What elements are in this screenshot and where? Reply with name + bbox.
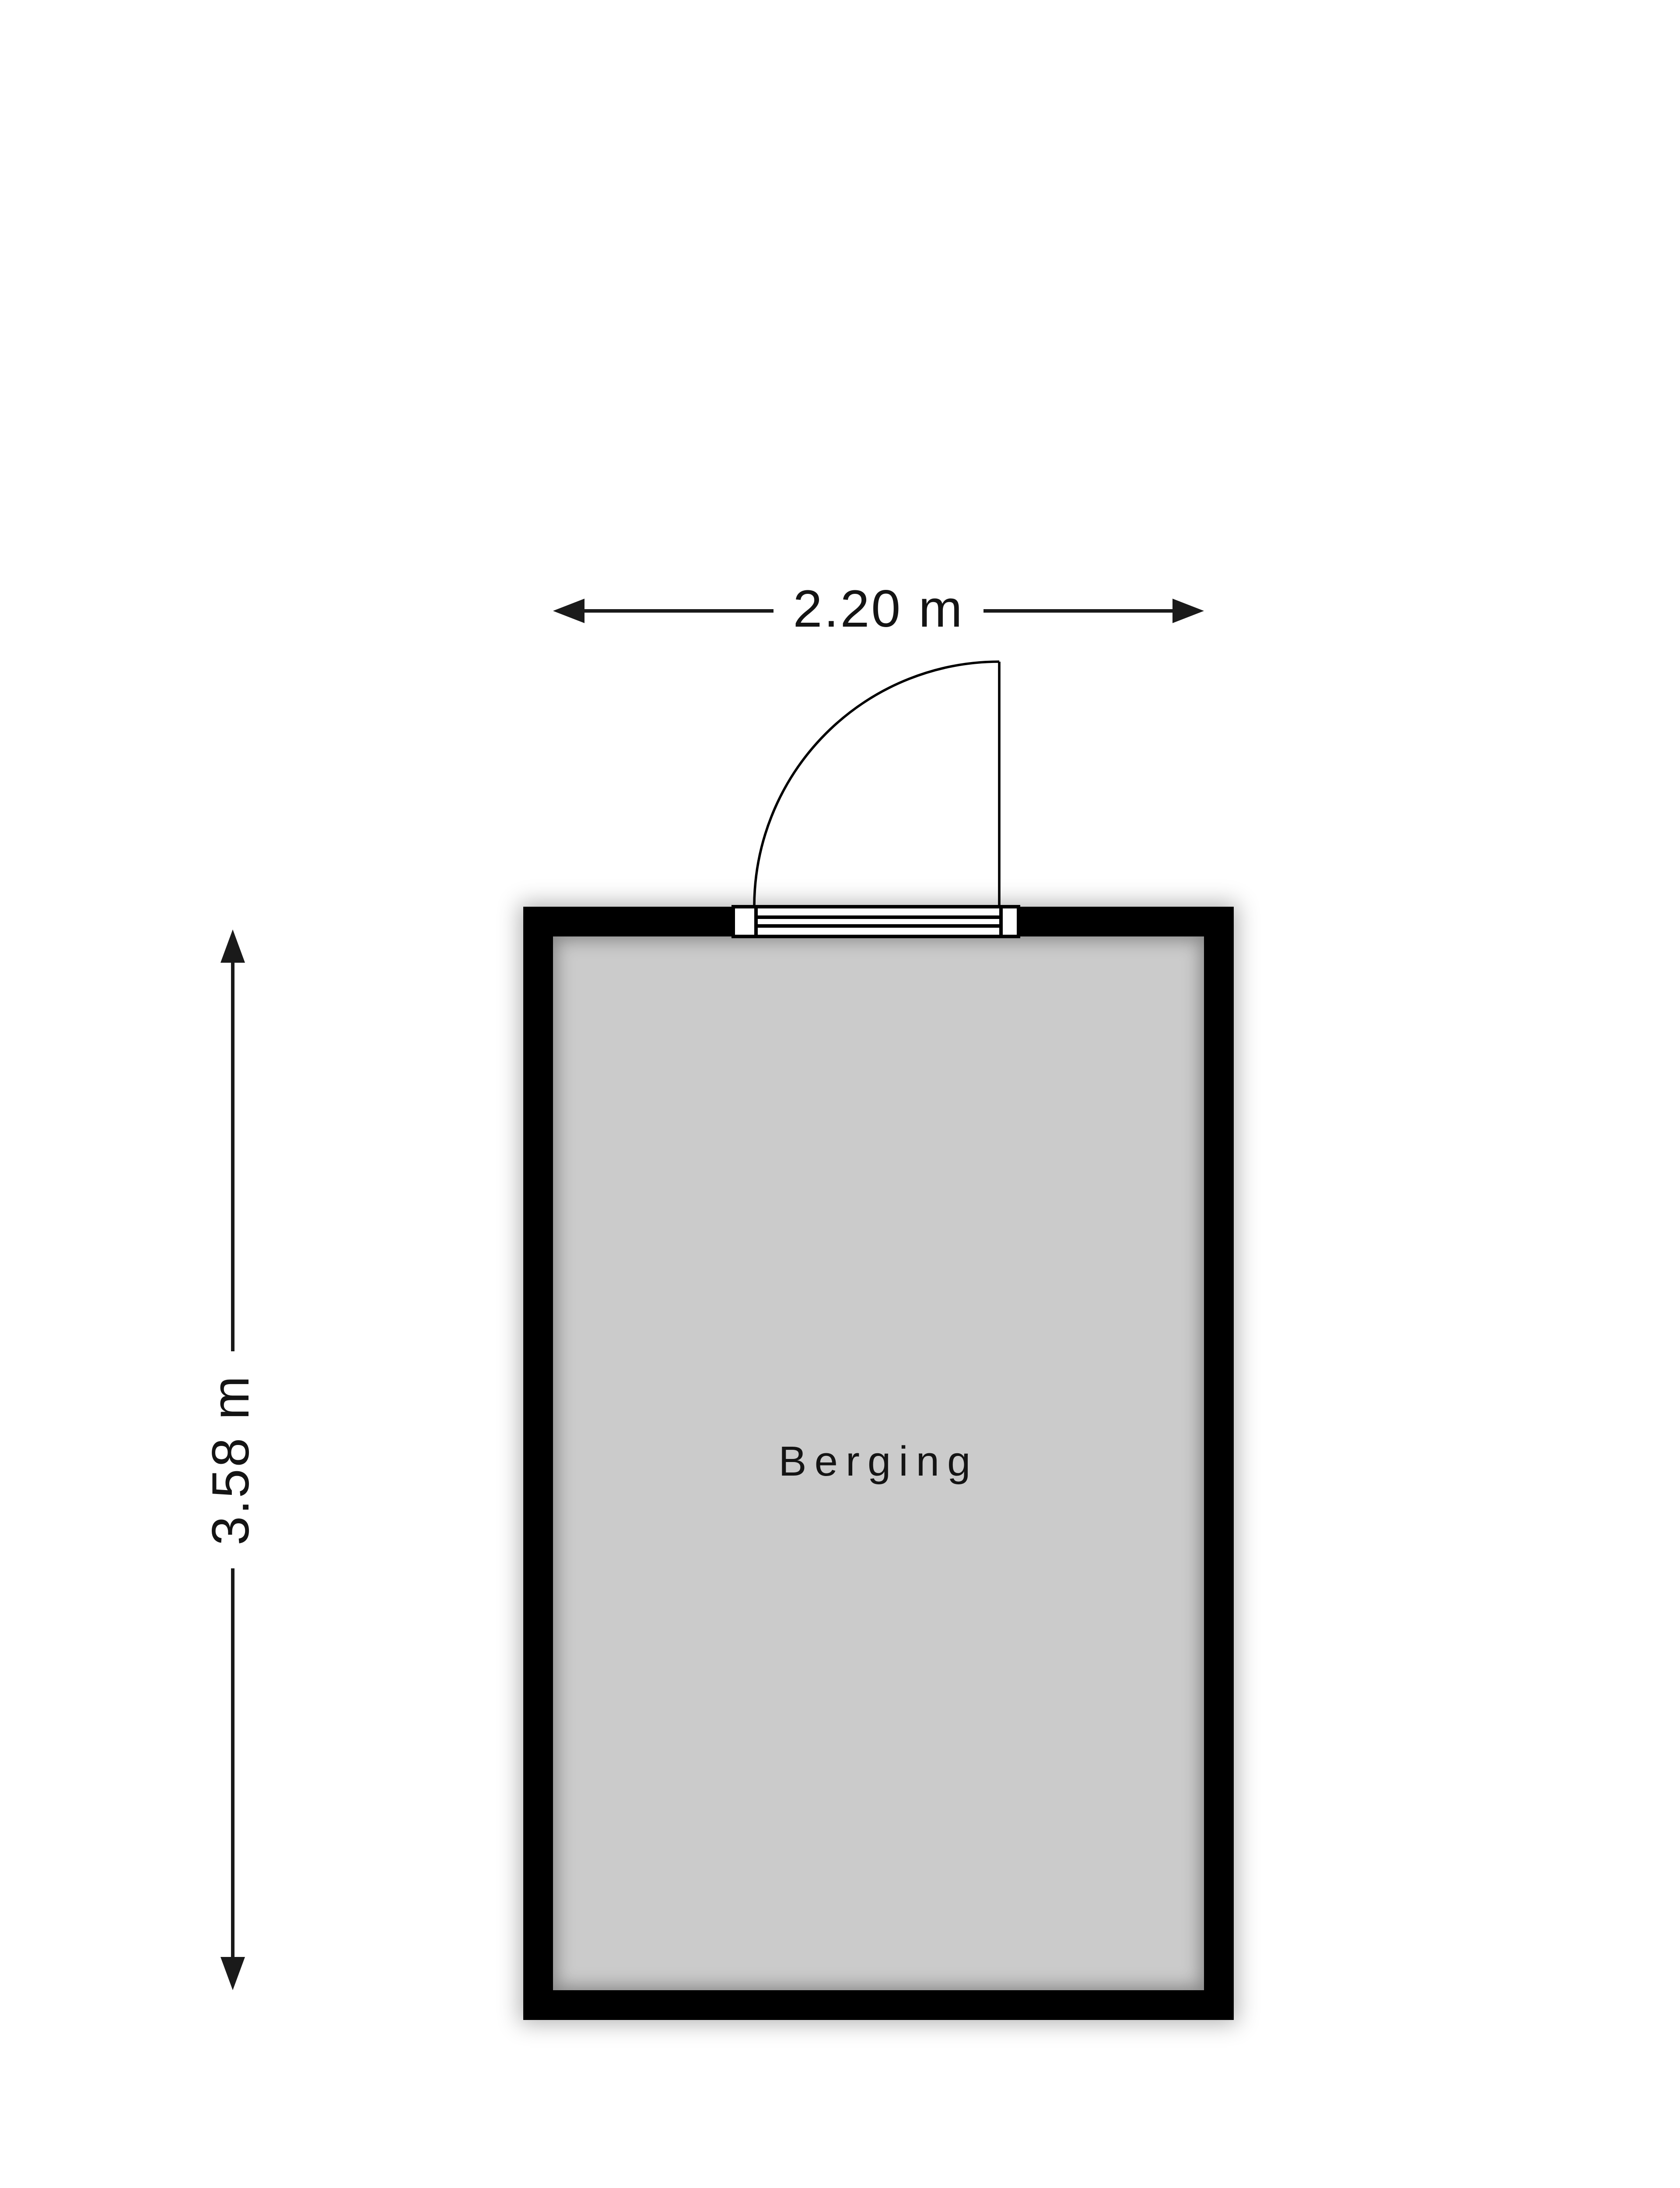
width-dimension-label: 2.20 m [793,581,964,641]
floorplan-annotations [0,0,1680,2188]
arrowhead-left-icon [553,599,584,623]
arrowhead-right-icon [1172,599,1204,623]
arrowhead-up-icon [220,929,245,963]
door-swing-arc-icon [754,662,999,907]
arrowhead-down-icon [220,1957,245,1990]
height-dimension-label: 3.58 m [203,1375,262,1546]
floorplan-page: Berging 2.20 m 3.58 m Aan de plattegrond… [0,0,1680,2188]
